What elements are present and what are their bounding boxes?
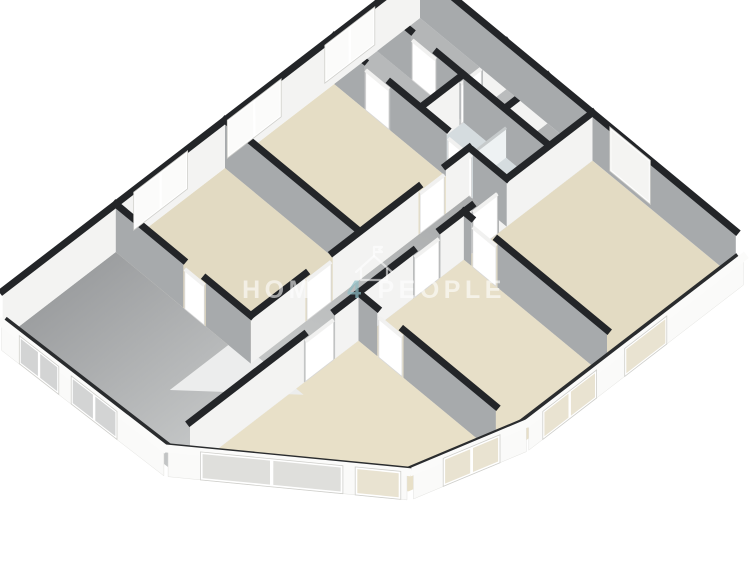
floor-plan-3d: HOME4PEOPLE <box>0 0 749 562</box>
window-pane <box>357 469 398 497</box>
floor-plan-canvas: HOME4PEOPLE <box>0 0 749 562</box>
